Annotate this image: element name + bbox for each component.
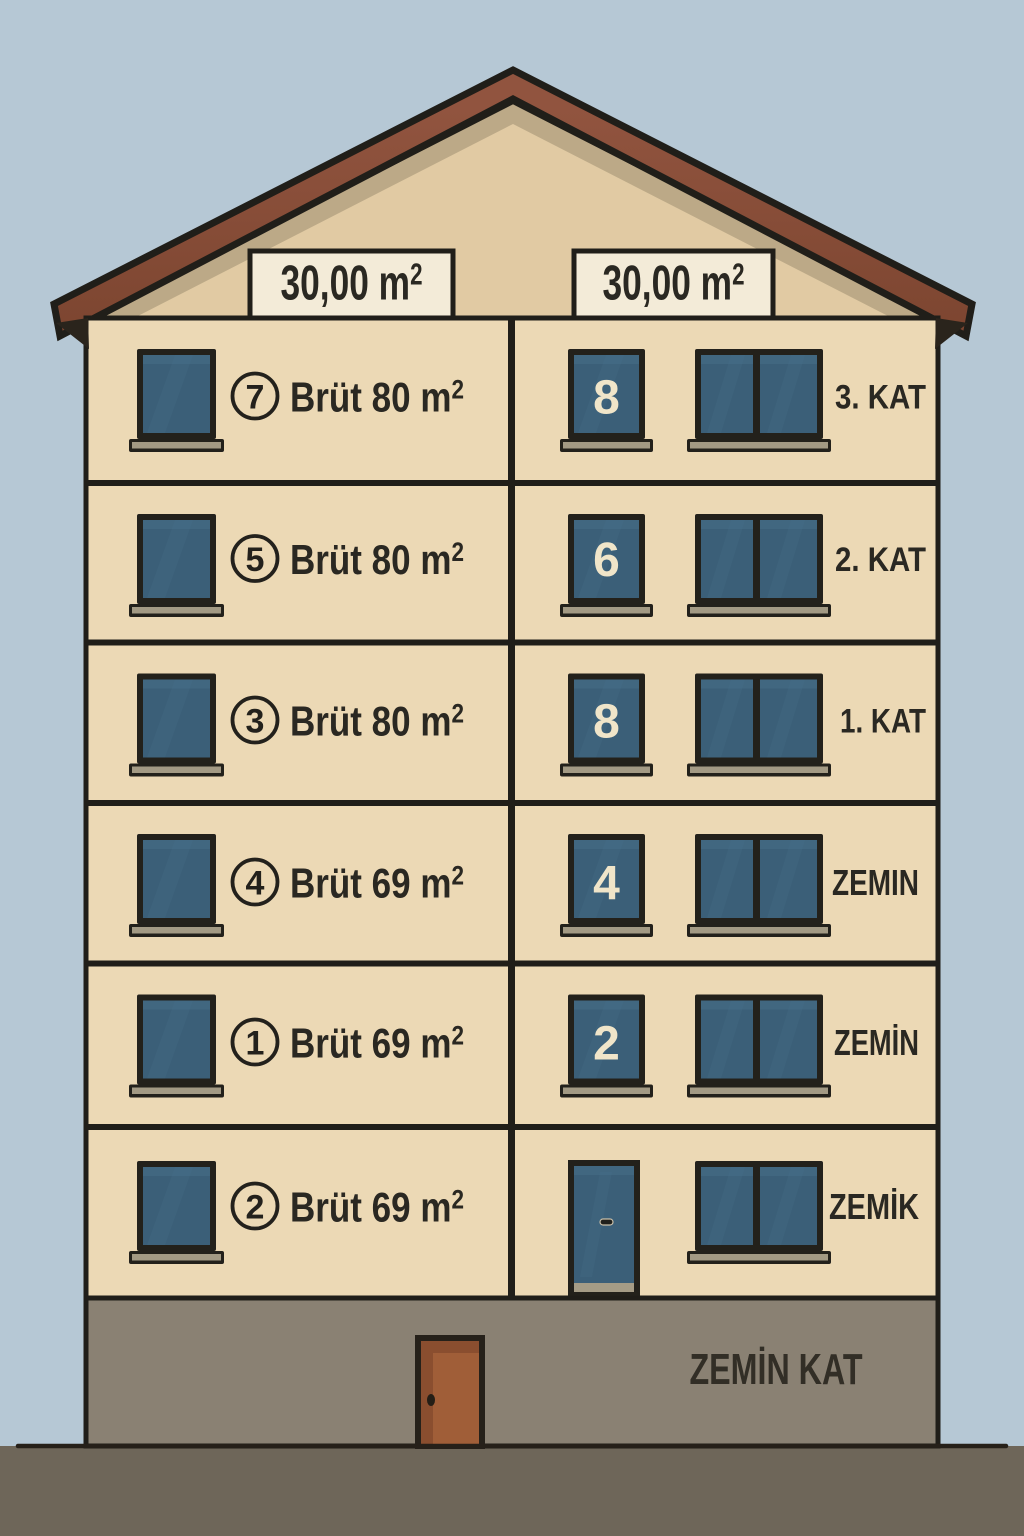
svg-text:Brüt 80 m2: Brüt 80 m2 (290, 697, 464, 744)
svg-text:7: 7 (246, 379, 265, 417)
svg-text:5: 5 (246, 541, 265, 579)
svg-text:1. KAT: 1. KAT (840, 702, 926, 740)
svg-text:Brüt 80 m2: Brüt 80 m2 (290, 536, 464, 583)
svg-text:30,00 m2: 30,00 m2 (281, 257, 423, 311)
svg-text:Brüt 69 m2: Brüt 69 m2 (290, 1019, 464, 1066)
svg-text:ZEMİK: ZEMİK (829, 1186, 919, 1227)
svg-text:Brüt 69 m2: Brüt 69 m2 (290, 859, 464, 906)
svg-text:2. KAT: 2. KAT (835, 541, 926, 579)
svg-text:3: 3 (246, 703, 265, 741)
svg-text:4: 4 (246, 865, 265, 903)
svg-text:30,00 m2: 30,00 m2 (603, 257, 745, 311)
svg-text:ZEMİN: ZEMİN (834, 1022, 919, 1063)
svg-text:3. KAT: 3. KAT (835, 378, 926, 416)
svg-text:ZEMİN KAT: ZEMİN KAT (690, 1345, 863, 1394)
svg-text:8: 8 (593, 372, 620, 425)
svg-text:ZEMIN: ZEMIN (832, 862, 919, 903)
svg-text:2: 2 (246, 1189, 265, 1227)
svg-text:2: 2 (593, 1018, 620, 1071)
svg-text:Brüt 69 m2: Brüt 69 m2 (290, 1183, 464, 1230)
svg-text:1: 1 (246, 1025, 265, 1063)
svg-text:8: 8 (593, 696, 620, 749)
svg-text:4: 4 (593, 858, 620, 911)
svg-text:6: 6 (593, 534, 620, 587)
svg-text:Brüt 80 m2: Brüt 80 m2 (290, 373, 464, 420)
